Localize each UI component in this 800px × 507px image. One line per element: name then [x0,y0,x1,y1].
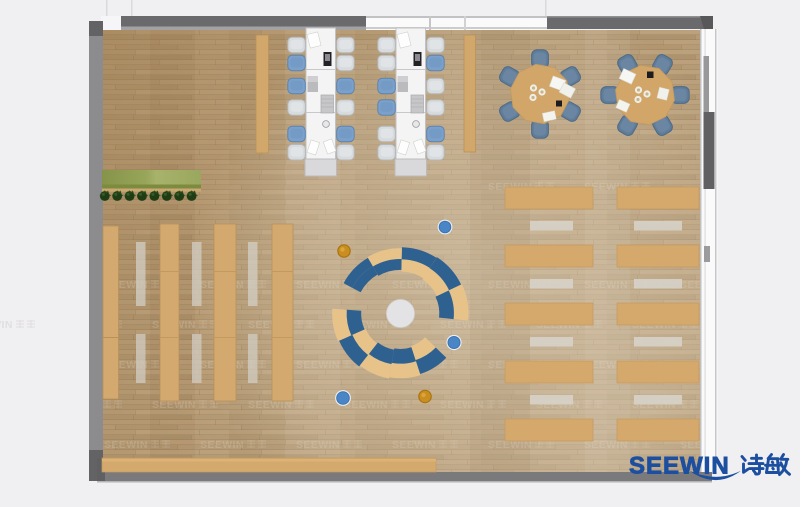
svg-text:SEEWIN: SEEWIN [629,453,730,480]
svg-text:SEEWIN: SEEWIN [0,319,13,331]
